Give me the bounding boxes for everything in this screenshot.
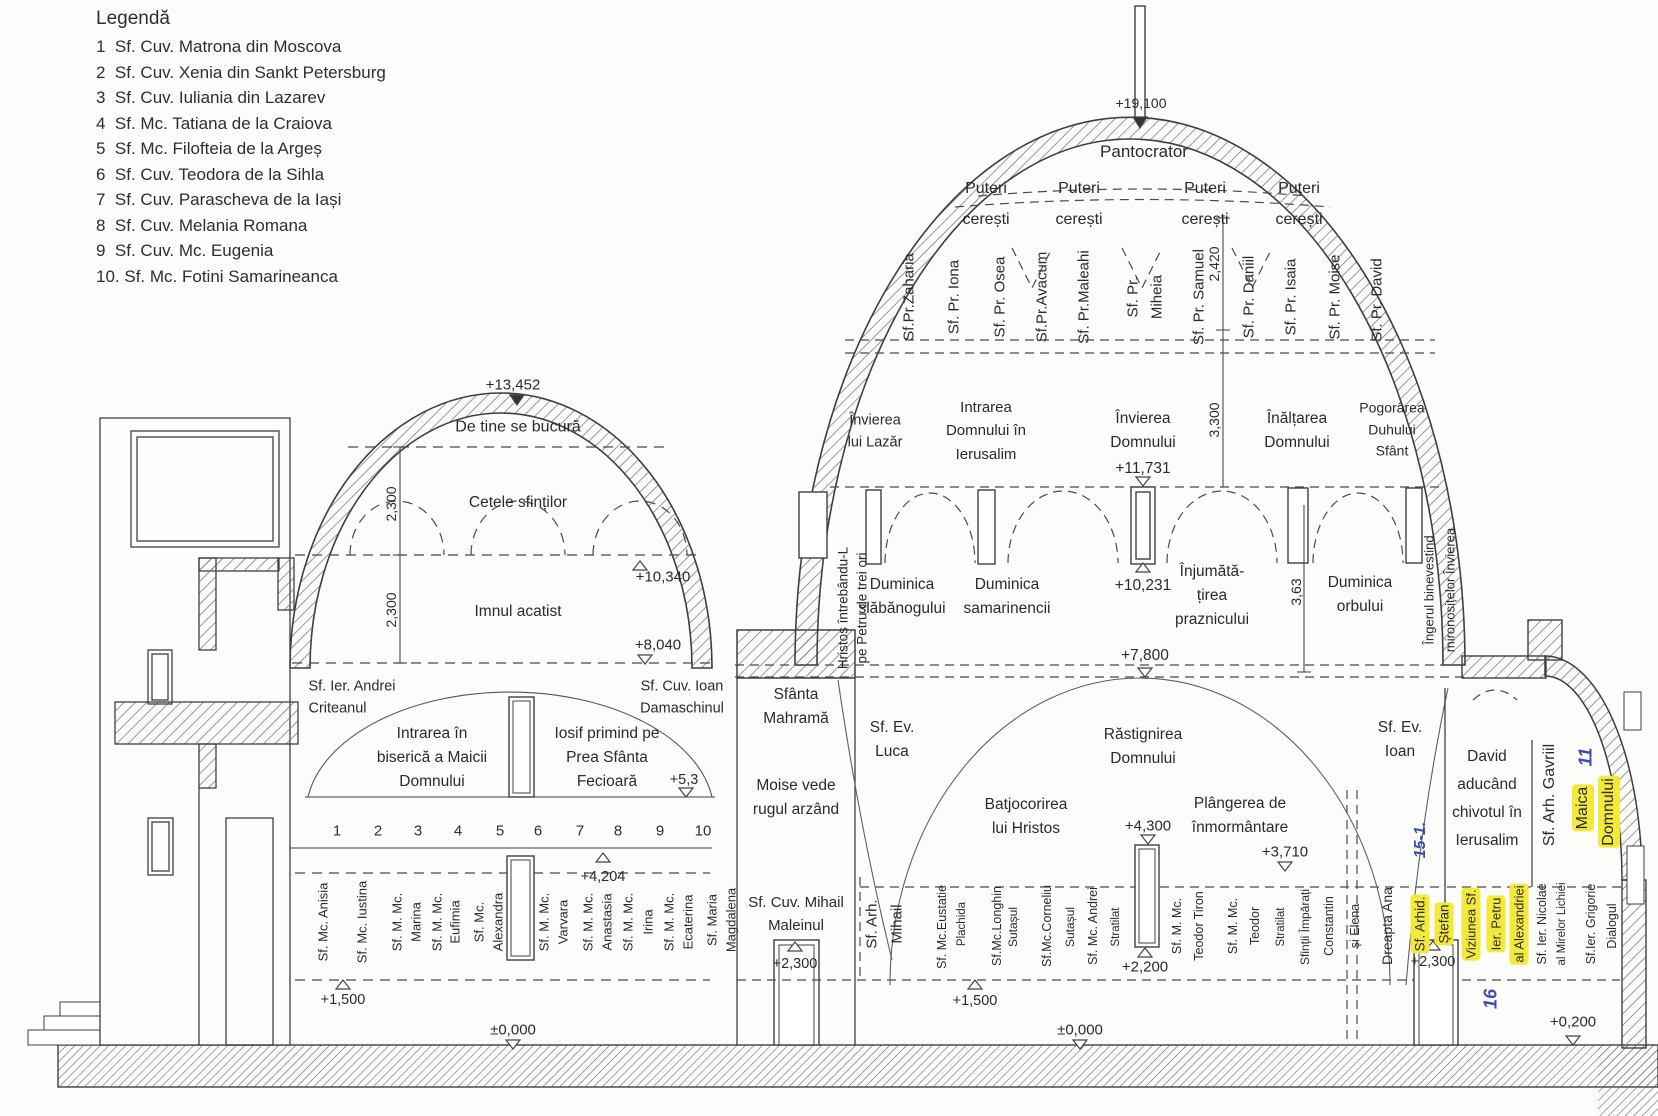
church-section-drawing: Legendă 1 Sf. Cuv. Matrona din Moscova 2… bbox=[0, 0, 1658, 1116]
scene-cetele-sfintilor: Cetele sfinților bbox=[469, 491, 567, 515]
legend-ref-2: 2 bbox=[374, 823, 382, 840]
scene-rastignirea: Răstignirea Domnului bbox=[1104, 723, 1182, 771]
saint-maria-magdalena: Sf. Maria bbox=[705, 894, 720, 946]
legend-ref-8: 8 bbox=[614, 823, 622, 840]
scene-batjocorirea: Batjocorirea lui Hristos bbox=[985, 793, 1068, 841]
elevation-7800: +7,800 bbox=[1121, 644, 1169, 668]
saint-varvara: Varvara bbox=[556, 900, 571, 945]
saint-arh-mihail: Sf. Arh. bbox=[864, 899, 881, 948]
saint-nicolae: Sf. Ier. Nicolae bbox=[1535, 883, 1549, 964]
saint-marina: Marina bbox=[409, 902, 424, 942]
saint-iustina: Sf. Mc. Iustina bbox=[355, 881, 370, 963]
saint-alexandra: Sf. Mc. bbox=[472, 902, 487, 942]
elevation-0200: +0,200 bbox=[1550, 1010, 1596, 1033]
handwritten-annotation-15-1: 15-1. bbox=[1412, 822, 1430, 858]
saint-corneliu: Sf.Mc.Corneliu bbox=[1040, 885, 1054, 967]
scene-pogorarea: Pogorârea Duhului Sfânt bbox=[1359, 397, 1424, 462]
scene-pantocrator: Pantocrator bbox=[1100, 139, 1188, 165]
scene-puteri-ceresti: Puteri cerești bbox=[962, 173, 1009, 235]
elevation-13452: +13,452 bbox=[486, 373, 541, 396]
legend-item: 7 Sf. Cuv. Parascheva de la Iași bbox=[96, 187, 386, 213]
saint-eustatie: Sf. Mc.Eustatie bbox=[935, 885, 949, 969]
saint-eufimia: Eufimia bbox=[448, 900, 463, 943]
legend-ref-6: 6 bbox=[534, 823, 542, 840]
elevation-apex: +19,100 bbox=[1116, 93, 1167, 115]
scene-plangerea: Plângerea de înmormântare bbox=[1192, 792, 1288, 840]
prophet-miheia: Miheia bbox=[1149, 275, 1166, 319]
legend-item: 4 Sf. Mc. Tatiana de la Craiova bbox=[96, 111, 386, 137]
scene-viziunea-petru-highlighted: al Alexandriei bbox=[1512, 885, 1527, 962]
saint-constantin-elena: Sfinții Împărați bbox=[1298, 889, 1312, 965]
dim-363: 3,63 bbox=[1288, 578, 1304, 605]
legend-item: 2 Sf. Cuv. Xenia din Sankt Petersburg bbox=[96, 60, 386, 86]
prophet-samuel: Sf. Pr. Samuel bbox=[1191, 249, 1208, 345]
saint-constantin-elena: Constantin bbox=[1322, 896, 1336, 956]
saint-teodor-tiron: Sf. M. Mc. bbox=[1170, 898, 1184, 954]
elevation-2200: +2,200 bbox=[1122, 955, 1168, 978]
scene-injumatatirea: Înjumătă- țirea praznicului bbox=[1175, 560, 1249, 632]
legend-ref-1: 1 bbox=[333, 823, 341, 840]
saint-eustatie: Plachida bbox=[956, 902, 968, 946]
legend-ref-4: 4 bbox=[454, 823, 462, 840]
saint-grigorie: Dialogul bbox=[1605, 903, 1619, 948]
legend-item: 8 Sf. Cuv. Melania Romana bbox=[96, 213, 386, 239]
handwritten-annotation-16: 16 bbox=[1481, 989, 1502, 1009]
saint-teodor-stratilat: Sf. M. Mc. bbox=[1226, 898, 1240, 954]
prophet-zaharia: Sf.Pr.Zaharia bbox=[901, 253, 918, 341]
elevation-1500-left: +1,500 bbox=[321, 989, 366, 1011]
elevation-0000: ±0,000 bbox=[1057, 1018, 1103, 1041]
saint-grigorie: Sf.Ier. Grigorie bbox=[1584, 884, 1598, 965]
prophet-avacum: Sf.Pr.Avacum bbox=[1034, 252, 1051, 343]
scene-viziunea-petru-highlighted: Ier. Petru bbox=[1489, 898, 1504, 951]
labels-layer: Legendă 1 Sf. Cuv. Matrona din Moscova 2… bbox=[0, 0, 1658, 1116]
legend-item: 6 Sf. Cuv. Teodora de la Sihla bbox=[96, 162, 386, 188]
elevation-2300-right: +2,300 bbox=[1411, 951, 1456, 973]
saint-andrei-stratilat: Sf. Mc. Andrei bbox=[1086, 887, 1100, 965]
scene-intrarea-biserica: Intrarea în biserică a Maicii Domnului bbox=[377, 722, 487, 794]
scene-de-tine-se-bucura: De tine se bucură bbox=[455, 416, 580, 441]
legend-item: 10. Sf. Mc. Fotini Samarineanca bbox=[96, 264, 386, 290]
prophet-osea: Sf. Pr. Osea bbox=[992, 257, 1009, 338]
saint-ecaterina: Sf. M. Mc. bbox=[662, 893, 677, 952]
elevation-4300: +4,300 bbox=[1125, 814, 1171, 837]
scene-puteri-ceresti: Puteri cerești bbox=[1055, 173, 1102, 235]
saint-nicolae: al Mirelor Lichiei bbox=[1556, 882, 1568, 965]
saint-arhid-stefan-highlighted: Sf. Arhid. bbox=[1413, 897, 1428, 952]
scene-sfanta-mahrama: Sfânta Mahramă bbox=[763, 683, 828, 731]
prophet-isaia: Sf. Pr. Isaia bbox=[1283, 259, 1300, 336]
elevation-3710: +3,710 bbox=[1262, 840, 1308, 863]
scene-invierea-domnului: Învierea Domnului bbox=[1110, 407, 1175, 455]
dim-3300: 3,300 bbox=[1206, 402, 1222, 437]
saint-anisia: Sf. Mc. Anisia bbox=[316, 883, 331, 962]
saint-teodor-tiron: Teodor Tiron bbox=[1192, 891, 1206, 960]
legend-ref-10: 10 bbox=[695, 823, 712, 840]
saint-dreapta-ana: Dreapta Ana bbox=[1379, 887, 1395, 965]
scene-inaltarea: Înălțarea Domnului bbox=[1264, 407, 1329, 455]
dim-2420: 2,420 bbox=[1206, 246, 1222, 281]
elevation-10231: +10,231 bbox=[1115, 574, 1171, 598]
saint-andrei-criteanul: Sf. Ier. Andrei Criteanul bbox=[308, 676, 395, 721]
elevation-8040: +8,040 bbox=[635, 633, 681, 656]
saint-longhin: Sutașul bbox=[1006, 907, 1020, 947]
scene-ingerul-binevestind: Îngerul binevestind bbox=[1422, 535, 1437, 644]
prophet-daniil: Sf. Pr. Daniil bbox=[1241, 256, 1258, 339]
scene-iosif-primind: Iosif primind pe Prea Sfânta Fecioară bbox=[554, 722, 659, 794]
scene-invierea-lazar: Învierea lui Lazăr bbox=[848, 410, 903, 455]
elevation-11731: +11,731 bbox=[1115, 457, 1170, 481]
scene-moise-rugul: Moise vede rugul arzând bbox=[753, 774, 839, 822]
saint-irina: Irina bbox=[641, 909, 656, 934]
scene-imnul-acatist: Imnul acatist bbox=[474, 600, 561, 624]
prophet-moise: Sf. Pr. Moise bbox=[1327, 254, 1344, 339]
prophet-david: Sf. Pr. David bbox=[1369, 258, 1386, 341]
scene-maica-domnului-highlighted: Maica bbox=[1574, 787, 1592, 830]
scene-viziunea-petru-highlighted: Viziunea Sf. bbox=[1464, 889, 1479, 958]
elevation-2300-left: +2,300 bbox=[773, 953, 818, 975]
saint-eufimia: Sf. M. Mc. bbox=[430, 893, 445, 952]
scene-ingerul-binevestind: mironosițelor Învierea bbox=[1443, 528, 1458, 652]
saint-ecaterina: Ecaterina bbox=[681, 895, 696, 950]
scene-puteri-ceresti: Puteri cerești bbox=[1181, 173, 1228, 235]
scene-hristos-petru: Hristos întrebându-L bbox=[836, 547, 851, 669]
dim-2300-upper: 2,300 bbox=[383, 486, 399, 521]
legend-item: 5 Sf. Mc. Filofteia de la Argeș bbox=[96, 136, 386, 162]
handwritten-annotation-11: 11 bbox=[1576, 748, 1597, 767]
saint-teodor-stratilat: Stratilat bbox=[1275, 908, 1287, 947]
saint-maria-magdalena: Magdalena bbox=[724, 888, 739, 952]
saint-marina: Sf. M. Mc. bbox=[390, 893, 405, 952]
legend-ref-7: 7 bbox=[576, 823, 584, 840]
saint-arhid-stefan-highlighted: Ștefan bbox=[1437, 904, 1452, 943]
scene-maica-domnului-highlighted: Domnului bbox=[1600, 778, 1618, 846]
elevation-10340: +10,340 bbox=[636, 565, 691, 588]
saint-ioan-damaschinul: Sf. Cuv. Ioan Damaschinul bbox=[640, 676, 724, 721]
saint-mihail-maleinul: Sf. Cuv. Mihail Maleinul bbox=[748, 891, 844, 938]
saint-andrei-stratilat: Stratilat bbox=[1110, 908, 1122, 947]
scene-david-chivotul: David aducând chivotul în Ierusalim bbox=[1452, 743, 1522, 855]
saint-teodor-stratilat: Teodor bbox=[1248, 907, 1262, 945]
saint-arh-mihail: Mihail bbox=[889, 904, 906, 943]
scene-intrarea-ierusalim: Intrarea Domnului în Ierusalim bbox=[946, 396, 1026, 466]
saint-anastasia: Anastasia bbox=[600, 893, 615, 950]
scene-duminica-orbului: Duminica orbului bbox=[1328, 571, 1393, 619]
legend-item: 3 Sf. Cuv. Iuliania din Lazarev bbox=[96, 85, 386, 111]
saint-irina: Sf. M. Mc. bbox=[621, 893, 636, 952]
saint-varvara: Sf. M. Mc. bbox=[537, 893, 552, 952]
elevation-1500: +1,500 bbox=[953, 990, 998, 1012]
prophet-miheia: Sf. Pr. bbox=[1125, 277, 1142, 318]
legend: Legendă 1 Sf. Cuv. Matrona din Moscova 2… bbox=[96, 8, 386, 289]
legend-ref-5: 5 bbox=[496, 823, 504, 840]
saint-arh-gavriil: Sf. Arh. Gavriil bbox=[1541, 744, 1559, 846]
legend-ref-9: 9 bbox=[656, 823, 664, 840]
elevation-0000-left: ±0,000 bbox=[490, 1018, 536, 1041]
prophet-iona: Sf. Pr. Iona bbox=[946, 260, 963, 334]
legend-ref-3: 3 bbox=[414, 823, 422, 840]
elevation-53: +5,3 bbox=[670, 769, 699, 791]
legend-title: Legendă bbox=[96, 8, 386, 30]
saint-corneliu: Sutașul bbox=[1063, 907, 1077, 947]
legend-item: 1 Sf. Cuv. Matrona din Moscova bbox=[96, 34, 386, 60]
prophet-maleahi: Sf. Pr.Maleahi bbox=[1076, 250, 1093, 343]
saint-longhin: Sf.Mc.Longhin bbox=[990, 886, 1004, 966]
saint-anastasia: Sf. M. Mc. bbox=[581, 893, 596, 952]
legend-item: 9 Sf. Cuv. Mc. Eugenia bbox=[96, 238, 386, 264]
scene-sf-ev-ioan: Sf. Ev. Ioan bbox=[1378, 716, 1423, 764]
scene-puteri-ceresti: Puteri cerești bbox=[1275, 173, 1322, 235]
dim-2300-lower: 2,300 bbox=[383, 592, 399, 627]
saint-constantin-elena: și Elena bbox=[1348, 904, 1362, 948]
saint-alexandra: Alexandra bbox=[491, 893, 506, 952]
scene-duminica-samarinencii: Duminica samarinencii bbox=[963, 573, 1050, 621]
scene-duminica-slabanogului: Duminica slăbănogului bbox=[858, 573, 945, 621]
scene-sf-ev-luca: Sf. Ev. Luca bbox=[870, 716, 915, 764]
elevation-4204: +4,204 bbox=[581, 866, 626, 888]
